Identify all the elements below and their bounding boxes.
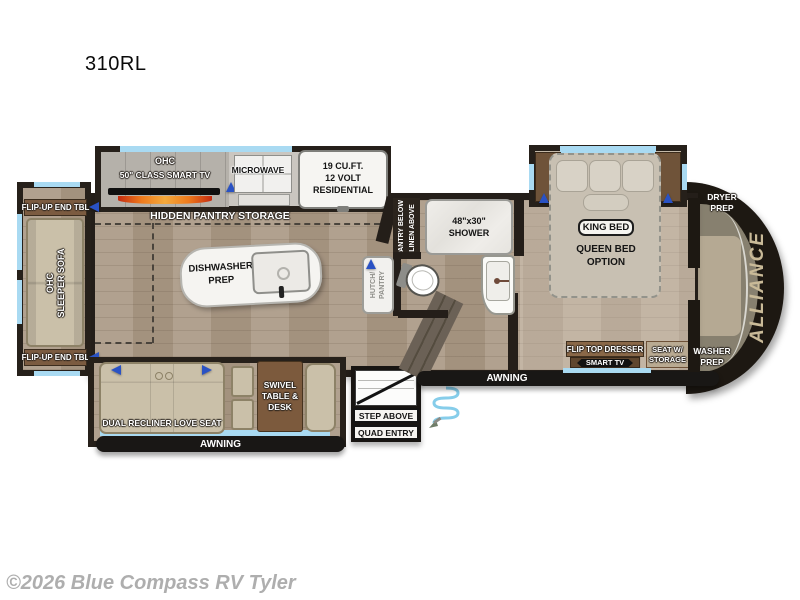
range-drawer (238, 194, 290, 206)
pantry-linen-label: PANTRY BELOW LINEN ABOVE (395, 199, 419, 257)
window (563, 368, 651, 373)
shower-text-label: SHOWER (449, 227, 490, 239)
swivel-line1: SWIVEL (262, 380, 298, 391)
cupholder (155, 372, 163, 380)
smart-tv-label: SMART TV (570, 357, 640, 368)
slide-arrow-icon (89, 202, 99, 212)
desk-chair (305, 363, 336, 432)
step-above-label: STEP ABOVE (353, 408, 419, 423)
brand-label: ALLIANCE (747, 202, 769, 372)
window (560, 146, 656, 153)
ohc-label: OHC (101, 155, 229, 167)
slide-travel-line-bottom (95, 342, 152, 344)
refrigerator-label: 19 CU.FT. 12 VOLT RESIDENTIAL (298, 154, 388, 202)
sofa-ohc-label: OHC (45, 248, 56, 317)
slide-arrow-icon (539, 193, 549, 203)
seat-line1: SEAT W/ (649, 345, 686, 355)
window (682, 164, 687, 190)
flip-up-end-table-bottom: FLIP-UP END TBL (24, 349, 87, 366)
front-closet-arc (694, 212, 748, 364)
washer-line1: WASHER (693, 346, 730, 357)
fridge-line1: 19 CU.FT. (313, 160, 373, 172)
seat-line2: STORAGE (649, 355, 686, 365)
flip-up-end-table-top: FLIP-UP END TBL (24, 199, 87, 216)
swivel-line3: DESK (262, 402, 298, 413)
island-faucet (279, 286, 285, 298)
hidden-pantry-label: HIDDEN PANTRY STORAGE (100, 209, 340, 222)
window (17, 280, 22, 324)
dryer-line1: DRYER (707, 192, 736, 203)
window (34, 182, 80, 187)
sofa-label: SLEEPER SOFA (56, 248, 67, 317)
queen-option-label: QUEEN BED OPTION (566, 242, 646, 270)
ottoman (231, 399, 254, 430)
bath-faucet-handle (499, 280, 509, 282)
queen-line1: QUEEN BED (576, 243, 635, 256)
pillow (622, 160, 654, 192)
swivel-table-label: SWIVEL TABLE & DESK (257, 366, 303, 426)
copyright: ©2026 Blue Compass RV Tyler (6, 572, 296, 595)
slide-arrow-icon (366, 259, 376, 269)
slide-arrow-icon (111, 365, 121, 375)
flip-top-dresser: FLIP TOP DRESSER (566, 341, 644, 357)
dryer-prep-label: DRYER PREP (694, 190, 750, 216)
utility-hose-icon (424, 382, 468, 434)
awning-right: AWNING (417, 371, 719, 386)
class-tv-label: 50" CLASS SMART TV (98, 169, 232, 181)
wall-segment (398, 310, 448, 318)
ottoman (231, 366, 254, 397)
linen-above-label: LINEN ABOVE (407, 200, 418, 256)
dryer-line2: PREP (707, 203, 736, 214)
window (529, 164, 534, 190)
slide-travel-line-side (152, 223, 154, 343)
cupholder (165, 372, 173, 380)
king-bed-label: KING BED (578, 219, 634, 236)
wall-segment (514, 196, 524, 256)
window (34, 371, 80, 376)
fridge-line2: 12 VOLT (313, 172, 373, 184)
floorplan-image: 310RL ALLIANCE OHC 50" CLASS SMART TV MI… (0, 0, 800, 600)
pillow (589, 160, 621, 192)
sleeper-sofa-label: OHC SLEEPER SOFA (43, 228, 69, 338)
brand-text: ALLIANCE (747, 231, 769, 343)
awning-right-label: AWNING (437, 371, 577, 386)
fridge-line3: RESIDENTIAL (313, 184, 373, 196)
microwave-label: MICROWAVE (218, 164, 298, 176)
swivel-line2: TABLE & (262, 391, 298, 402)
awning-left-label: AWNING (200, 439, 241, 450)
pillow (556, 160, 588, 192)
tv-unit (108, 188, 220, 195)
lumbar-pillow (583, 194, 629, 211)
hutch-line1: HUTCH/ (369, 271, 378, 299)
dual-recliner-label: DUAL RECLINER LOVE SEAT (97, 417, 227, 429)
island-sink-drain (277, 267, 290, 280)
slide-travel-line-top (95, 223, 390, 225)
fireplace (118, 196, 212, 204)
washer-prep-label: WASHER PREP (684, 344, 740, 370)
quad-entry-label: QUAD ENTRY (353, 425, 419, 440)
island-label: DISHWASHER PREP (185, 252, 257, 296)
window (17, 214, 22, 270)
slide-arrow-icon (663, 193, 673, 203)
hutch-line2: PANTRY (378, 271, 387, 299)
washer-line2: PREP (693, 357, 730, 368)
pantry-below-label: PANTRY BELOW (396, 200, 407, 256)
seat-storage-label: SEAT W/ STORAGE (646, 342, 689, 367)
shower-size-label: 48"x30" (449, 215, 490, 227)
awning-left: AWNING (96, 436, 345, 452)
page-title: 310RL (85, 53, 146, 76)
window (218, 146, 292, 152)
queen-line2: OPTION (576, 256, 635, 269)
slide-arrow-icon (202, 365, 212, 375)
shower-label: 48"x30" SHOWER (425, 207, 513, 247)
